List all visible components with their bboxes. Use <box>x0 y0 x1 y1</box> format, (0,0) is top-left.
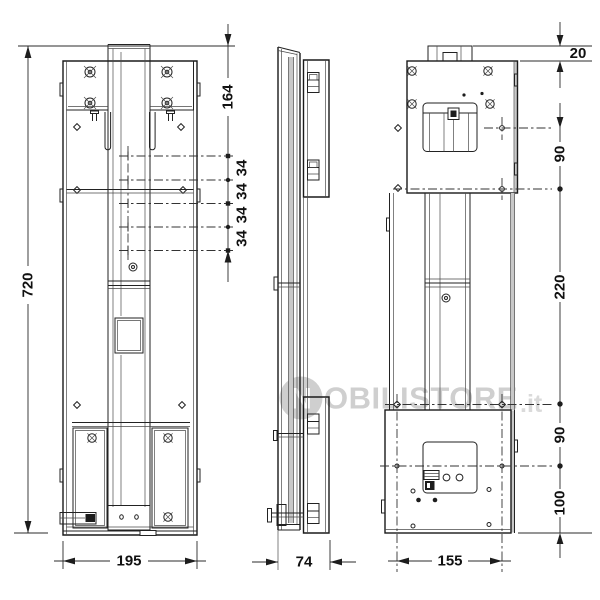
dim-depth-74: 74 <box>252 530 356 571</box>
dim-label-hole-spacing-3: 34 <box>234 206 251 223</box>
dim-label-back-top-gap: 20 <box>570 45 587 62</box>
dim-label-back-mid-pitch: 220 <box>552 274 569 299</box>
dim-label-back-bottom-pitch: 100 <box>552 490 569 515</box>
drawing-canvas: N OBILISTORE .it <box>0 0 600 600</box>
dim-label-front-width: 195 <box>116 553 141 570</box>
dim-label-hole-spacing-4: 34 <box>234 230 251 247</box>
watermark: N OBILISTORE .it <box>280 377 543 420</box>
dim-label-side-depth: 74 <box>296 554 313 571</box>
dim-label-hole-spacing-1: 34 <box>234 159 251 176</box>
side-view <box>268 47 330 533</box>
hole-row-centerlines <box>119 146 233 261</box>
technical-drawing: N OBILISTORE .it <box>0 0 600 600</box>
dim-label-back-upper-pitch: 90 <box>552 146 569 163</box>
dim-height-720: 720 <box>14 46 235 533</box>
back-view <box>380 46 552 572</box>
front-view <box>60 45 233 536</box>
dim-label-back-width: 155 <box>437 553 462 570</box>
watermark-tld: .it <box>520 390 543 418</box>
dim-label-front-height: 720 <box>20 272 37 297</box>
dim-label-hole-spacing-2: 34 <box>234 183 251 200</box>
dim-hole-spacing-chain: 34 34 34 34 <box>225 154 251 282</box>
dim-offset-164: 164 <box>220 24 237 156</box>
dim-chain-right: 20 90 220 90 100 <box>473 22 592 558</box>
dim-width-195: 195 <box>54 541 206 570</box>
dim-label-front-top-offset: 164 <box>220 84 237 110</box>
dim-width-155: 155 <box>388 553 511 570</box>
dim-label-back-lower-pitch: 90 <box>552 427 569 444</box>
